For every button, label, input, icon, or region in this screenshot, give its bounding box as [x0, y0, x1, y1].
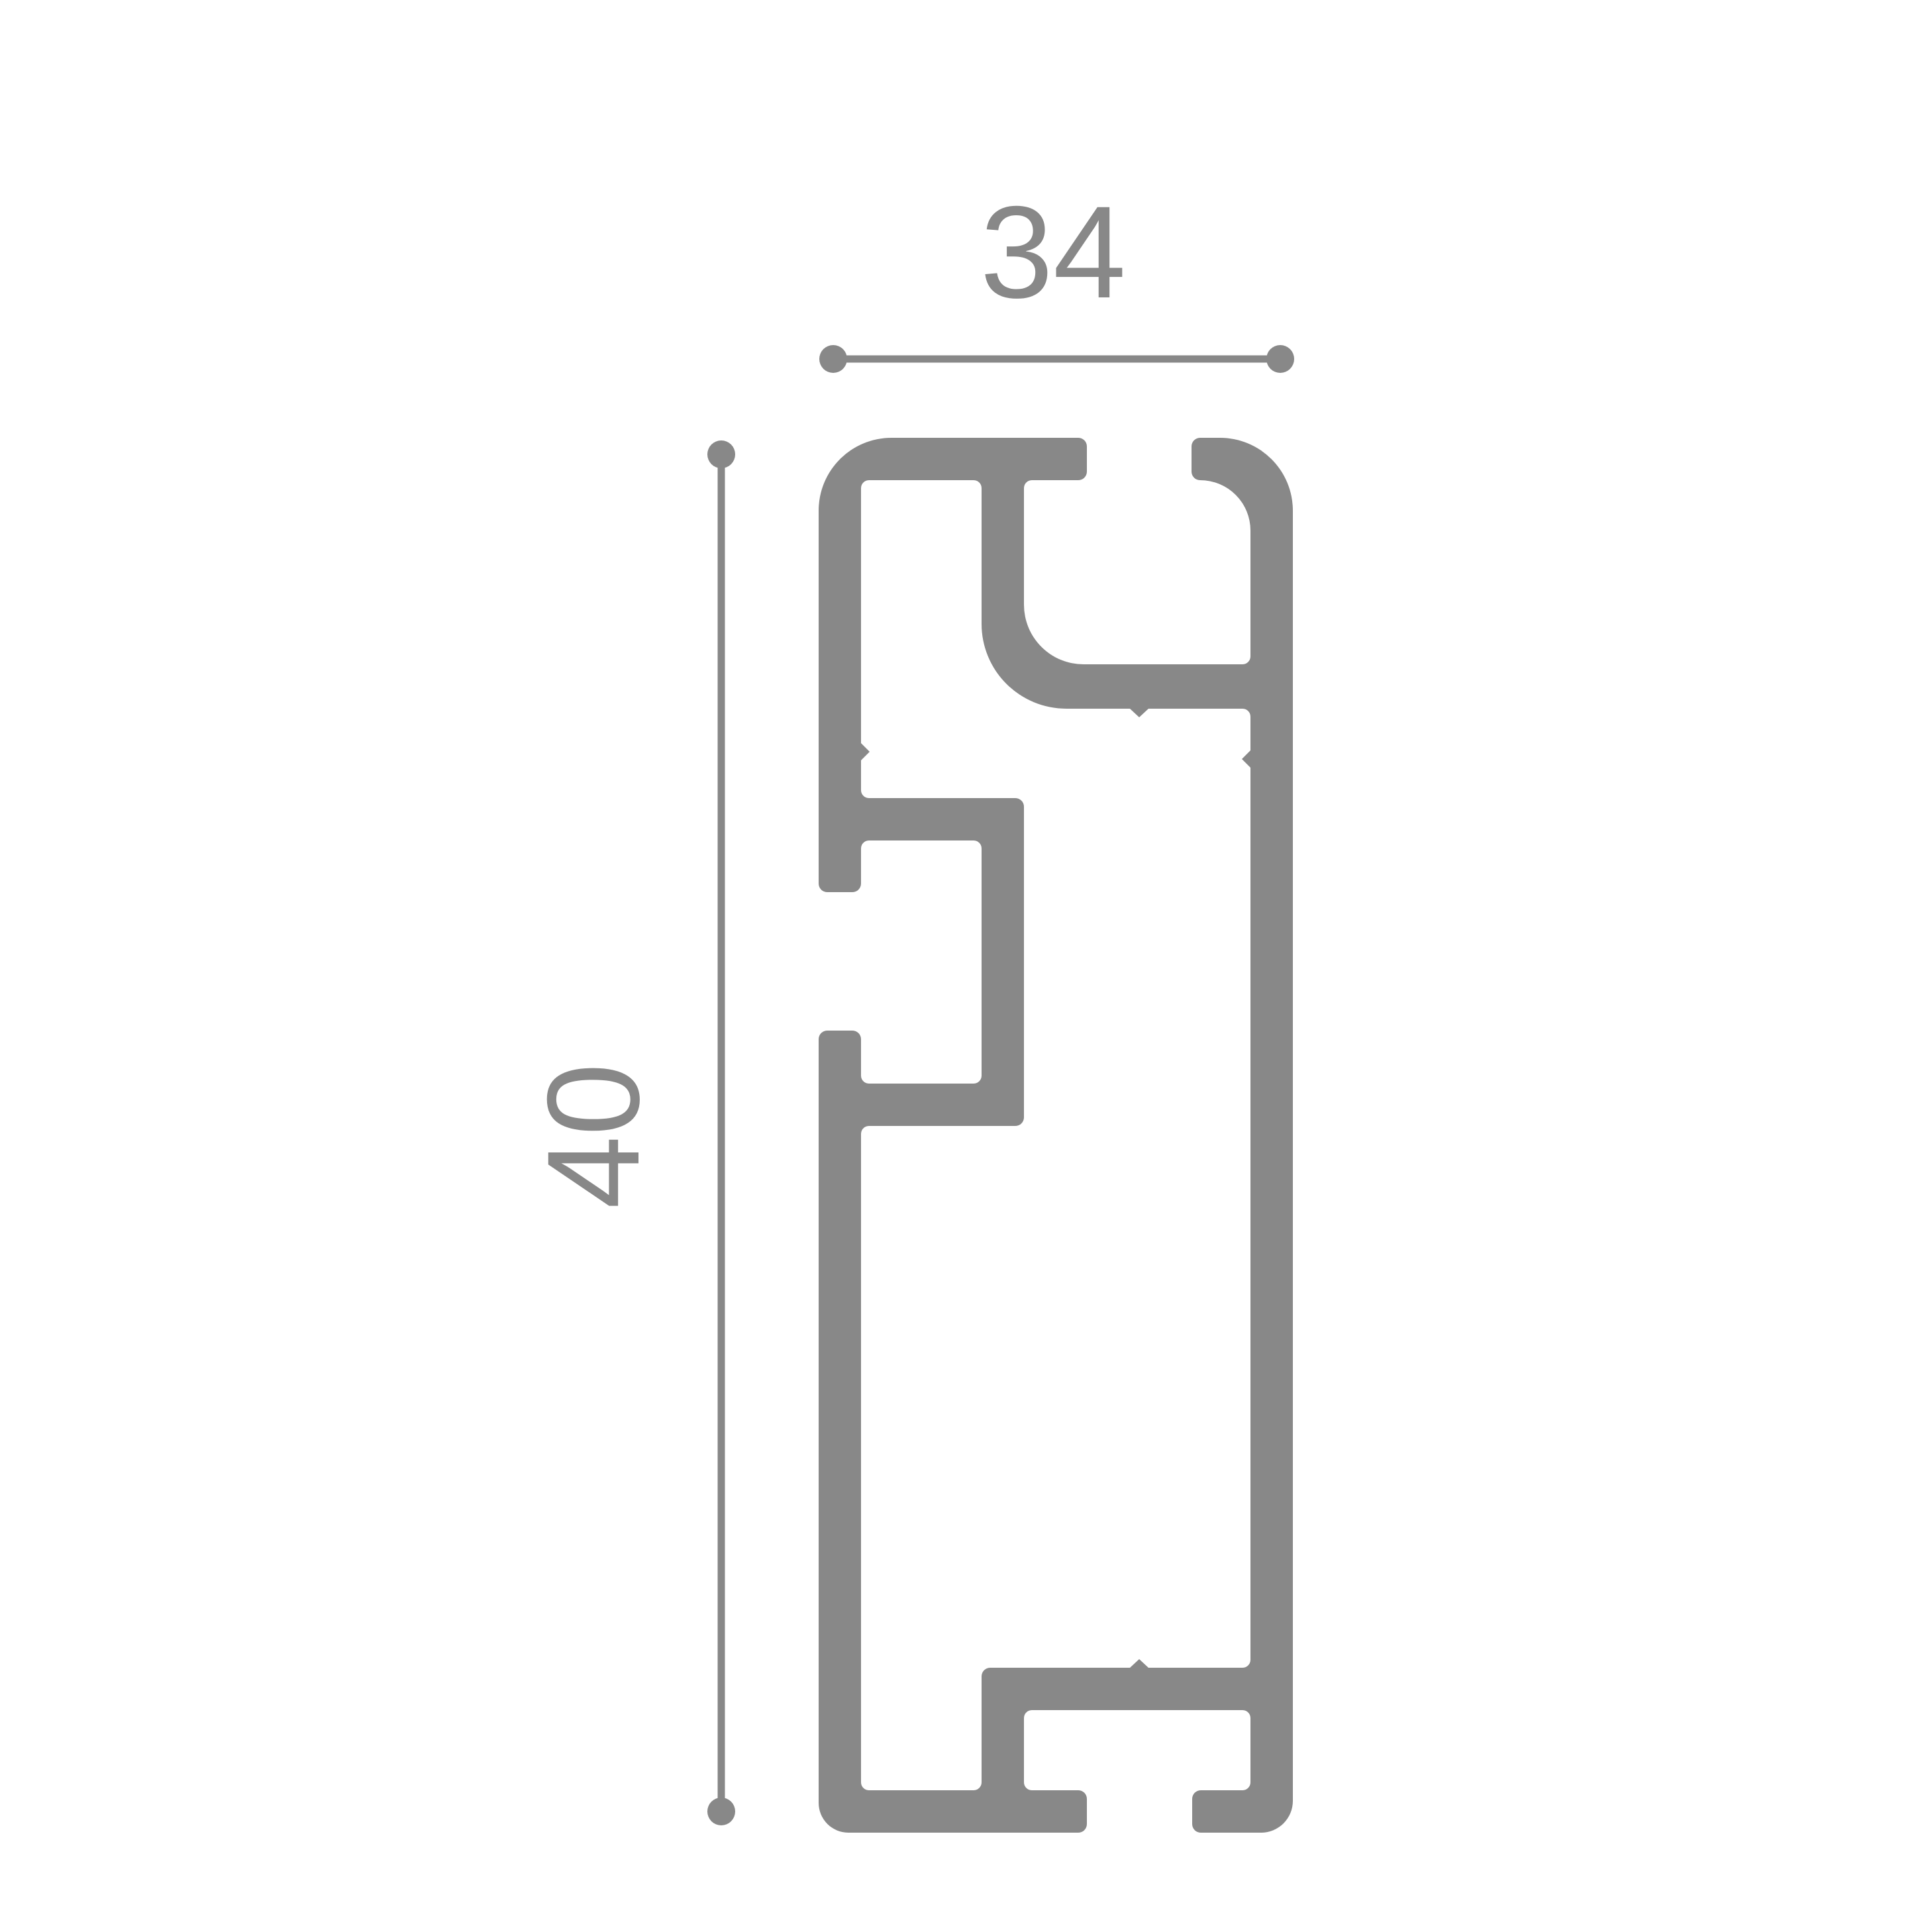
- svg-text:34: 34: [980, 179, 1126, 325]
- svg-text:40: 40: [520, 1063, 666, 1209]
